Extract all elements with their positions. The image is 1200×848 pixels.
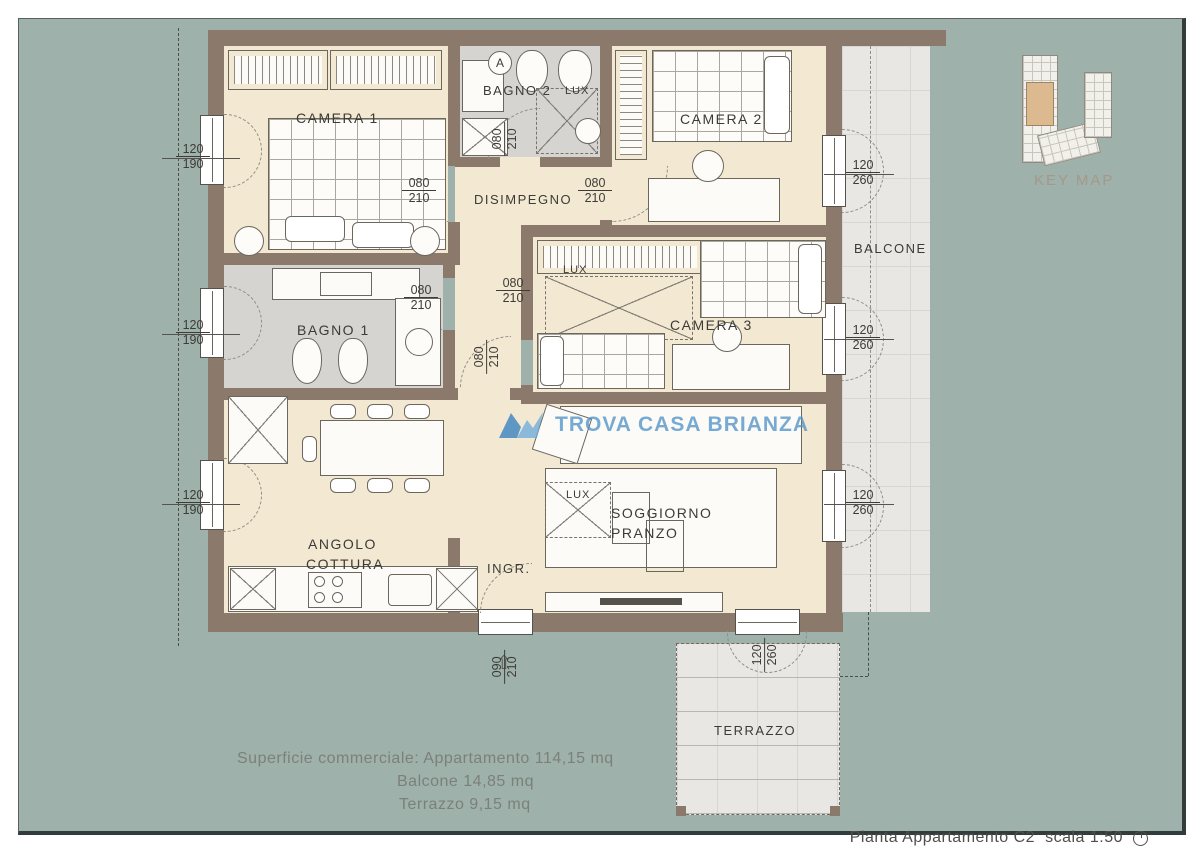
dining-chair-5 <box>367 478 393 493</box>
camera1-pillow-1 <box>285 216 345 242</box>
dim-balcony-door-2: 120260 <box>846 323 880 353</box>
dining-table <box>320 420 444 476</box>
dining-chair-1 <box>330 404 356 419</box>
soggiorno-label-1: SOGGIORNO <box>611 505 712 521</box>
sheet-title: Pianta Appartamento C2 <box>850 829 1035 847</box>
lot-line-terrace-v <box>868 612 869 676</box>
wall-camera1-right-up <box>448 46 460 166</box>
camera2-chair <box>692 150 724 182</box>
wall-top-band <box>208 30 946 46</box>
wall-camera23-horizontal <box>521 225 826 237</box>
title-block: Pianta Appartamento C2 scala 1:50 <box>850 829 1148 847</box>
bagno2-shower-drain <box>575 118 601 144</box>
dim-balcony-door-3: 120260 <box>846 488 880 518</box>
wall-bagno1-right-low <box>443 330 455 388</box>
wall-bottom-2 <box>533 613 737 632</box>
camera2-pillow <box>764 56 790 134</box>
hob-burner-4 <box>332 592 343 603</box>
watermark-logo-icon <box>497 408 547 442</box>
camera2-wardrobe <box>615 50 647 160</box>
camera1-bedside-symbol-right <box>410 226 440 256</box>
dining-chair-6 <box>404 478 430 493</box>
balcone-label: BALCONE <box>854 241 927 256</box>
ingresso-label: INGR. <box>487 561 531 576</box>
dim-camera1-door: 080210 <box>402 176 436 206</box>
dining-chair-4 <box>330 478 356 493</box>
dining-chair-2 <box>367 404 393 419</box>
hob-burner-1 <box>314 576 325 587</box>
dim-balcony-door-1: 120260 <box>846 158 880 188</box>
hob-burner-3 <box>314 592 325 603</box>
angolo-cottura-label-1: ANGOLO <box>308 536 377 552</box>
dim-window-left-2: 120190 <box>176 318 210 348</box>
wall-bagno1-right-up <box>443 265 455 278</box>
watermark-text: TROVA CASA BRIANZA <box>555 413 809 437</box>
cucina-tall-cabinet <box>228 396 288 464</box>
camera1-label: CAMERA 1 <box>296 110 379 126</box>
terrazzo-label: TERRAZZO <box>714 723 796 738</box>
terrazzo-post-right <box>830 806 840 816</box>
dim-camera2-door: 080210 <box>578 176 612 206</box>
camera3-bed1-pillow <box>798 244 822 314</box>
angolo-cottura-label-2: COTTURA <box>306 556 384 572</box>
kitchen-cabinet-left <box>230 568 276 610</box>
camera3-lux-label: LUX <box>563 264 587 276</box>
section-marker-a: A <box>488 51 512 75</box>
keymap-unit-highlight <box>1026 82 1054 126</box>
wall-camera3-bottom <box>533 392 826 404</box>
camera3-label: CAMERA 3 <box>670 317 753 333</box>
summary-line-3: Terrazzo 9,15 mq <box>399 796 531 814</box>
dim-entry-door: 090210 <box>490 650 520 684</box>
bagno1-bidet <box>338 338 368 384</box>
hob-burner-2 <box>332 576 343 587</box>
dim-window-left-1: 120190 <box>176 142 210 172</box>
camera3-bed2-pillow <box>540 336 564 386</box>
keymap-building-right <box>1084 72 1112 138</box>
sheet-scale: scala 1:50 <box>1045 829 1123 847</box>
dim-camera3-door: 080210 <box>496 276 530 306</box>
bagno2-label: BAGNO 2 <box>483 83 551 98</box>
soggiorno-label-2: PRANZO <box>611 525 678 541</box>
camera1-wardrobe-left <box>228 50 328 90</box>
camera2-desk <box>648 178 780 222</box>
section-marker-a-label: A <box>496 56 504 70</box>
camera1-bedside-symbol-left <box>234 226 264 256</box>
watermark: TROVA CASA BRIANZA <box>497 408 809 442</box>
soggiorno-lux-label: LUX <box>566 489 590 501</box>
dining-chair-3 <box>404 404 430 419</box>
wall-corridor-bottom-stub <box>510 388 533 400</box>
kitchen-sink <box>388 574 432 606</box>
dining-chair-7 <box>302 436 317 462</box>
disimpegno-label: DISIMPEGNO <box>474 192 572 207</box>
camera1-pillow-2 <box>352 222 414 248</box>
dim-terrace-door: 120260 <box>750 638 780 672</box>
bagno1-wc <box>292 338 322 384</box>
camera3-wardrobe <box>537 240 703 274</box>
north-clock-icon <box>1133 831 1148 846</box>
wall-camera2-left-up <box>600 46 612 167</box>
wall-bottom-3 <box>800 613 843 632</box>
wall-bagno2-bottom-2 <box>540 157 600 167</box>
dim-corridor-south-door: 080210 <box>472 340 502 374</box>
camera1-wardrobe-right <box>330 50 442 90</box>
dim-window-left-3: 120190 <box>176 488 210 518</box>
dim-bagno1-door: 080210 <box>404 283 438 313</box>
terrazzo-post-left <box>676 806 686 816</box>
kitchen-cabinet-right <box>436 568 478 610</box>
tv-screen <box>600 598 682 605</box>
bagno1-label: BAGNO 1 <box>297 322 370 338</box>
bagno1-shower-drain <box>405 328 433 356</box>
camera2-label: CAMERA 2 <box>680 111 763 127</box>
wall-bottom-1 <box>208 613 478 632</box>
summary-line-2: Balcone 14,85 mq <box>397 773 534 791</box>
drawing-sheet: A CAMERA 1 BAGNO 2 LUX CAMERA 2 <box>0 0 1200 848</box>
dim-bagno2-door: 080210 <box>490 122 520 156</box>
bagno1-sink <box>320 272 372 296</box>
keymap-label: KEY MAP <box>1034 172 1114 189</box>
summary-line-1: Superficie commerciale: Appartamento 114… <box>237 750 614 768</box>
bagno2-lux-label: LUX <box>565 85 589 97</box>
